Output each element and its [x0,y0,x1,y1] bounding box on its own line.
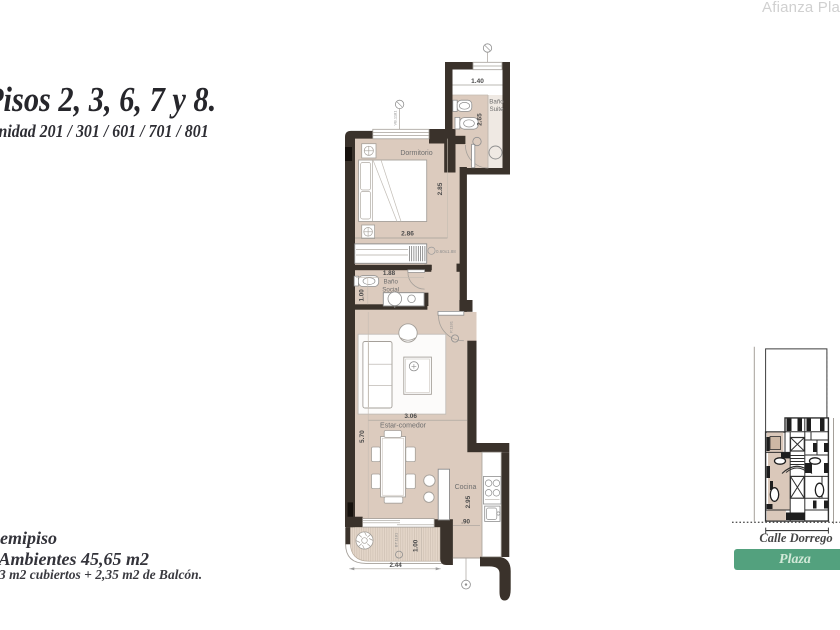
svg-text:1.00: 1.00 [412,539,419,552]
svg-text:1.00: 1.00 [359,289,366,302]
svg-text:2.86: 2.86 [401,231,414,238]
svg-text:5.70: 5.70 [359,430,366,443]
svg-text:1.40: 1.40 [471,78,484,85]
svg-text:Suite: Suite [489,106,504,113]
svg-text:VB.1181: VB.1181 [393,110,398,126]
svg-text:Estar-comedor: Estar-comedor [380,422,427,429]
svg-text:Dormitorio: Dormitorio [400,150,432,157]
svg-text:2.95: 2.95 [465,495,472,508]
svg-text:1.88: 1.88 [383,270,396,277]
svg-text:Cocina: Cocina [455,484,477,491]
svg-text:.90: .90 [461,519,470,526]
svg-text:2.65: 2.65 [476,113,483,126]
svg-text:0.60x1.88: 0.60x1.88 [436,249,456,254]
svg-text:Baño: Baño [383,279,398,286]
svg-text:2.85: 2.85 [437,182,444,195]
svg-text:2.44: 2.44 [389,562,402,569]
svg-text:BT.1181: BT.1181 [393,532,398,547]
svg-text:3.06: 3.06 [404,413,417,420]
svg-text:Social: Social [382,286,399,293]
svg-text:Baño: Baño [489,99,504,106]
svg-text:P.1181: P.1181 [448,320,453,333]
